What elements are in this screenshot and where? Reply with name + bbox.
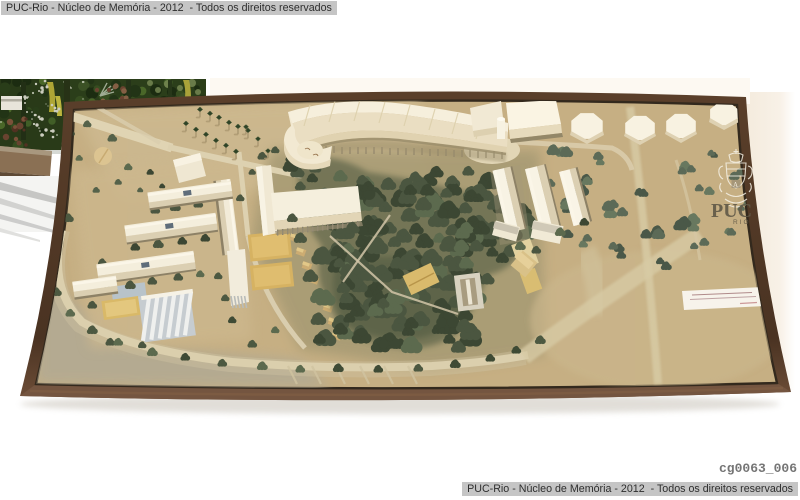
svg-text:RIO: RIO: [733, 219, 751, 226]
svg-text:A: A: [733, 181, 738, 189]
